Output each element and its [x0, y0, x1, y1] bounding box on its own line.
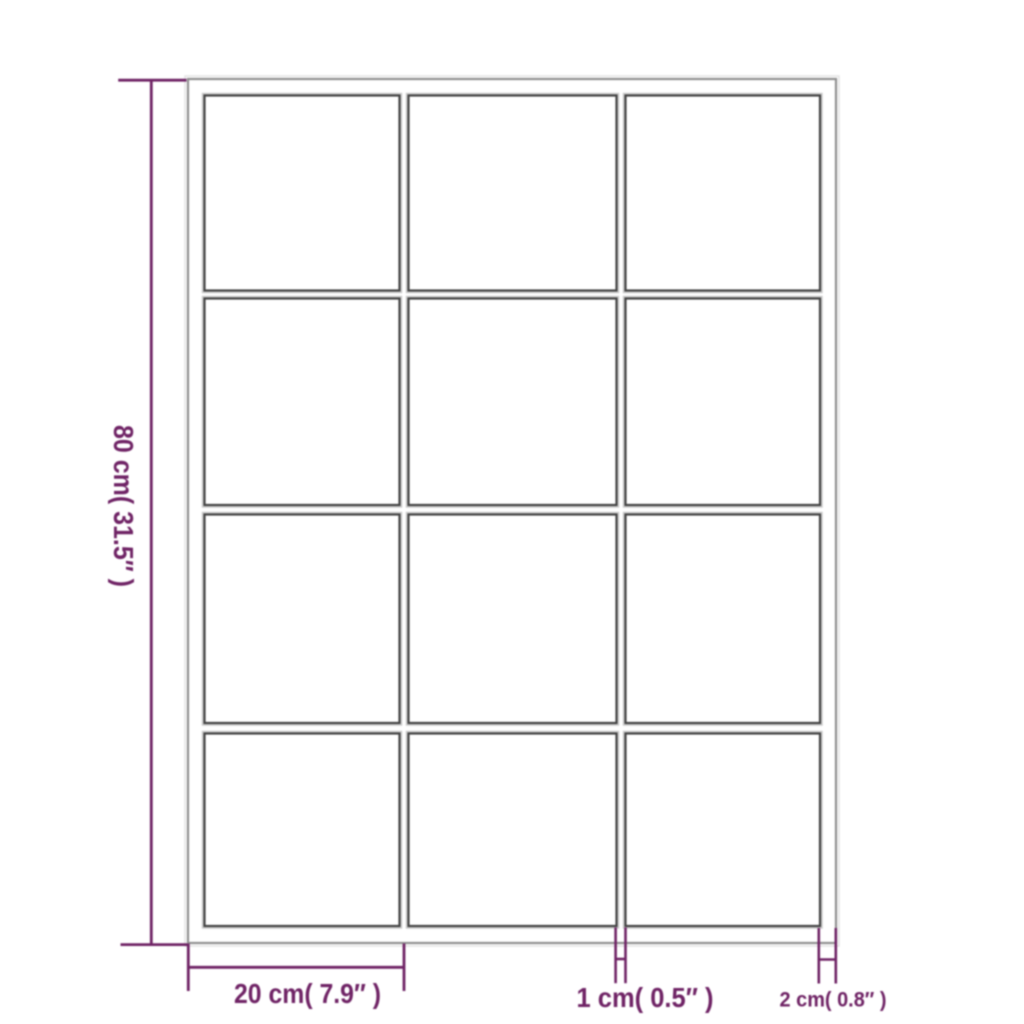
svg-text:80 cm( 31.5″ ): 80 cm( 31.5″ ) — [108, 425, 139, 587]
svg-text:20 cm( 7.9″ ): 20 cm( 7.9″ ) — [234, 978, 381, 1009]
svg-text:2 cm( 0.8″ ): 2 cm( 0.8″ ) — [780, 989, 887, 1012]
svg-text:1 cm( 0.5″ ): 1 cm( 0.5″ ) — [577, 982, 714, 1013]
